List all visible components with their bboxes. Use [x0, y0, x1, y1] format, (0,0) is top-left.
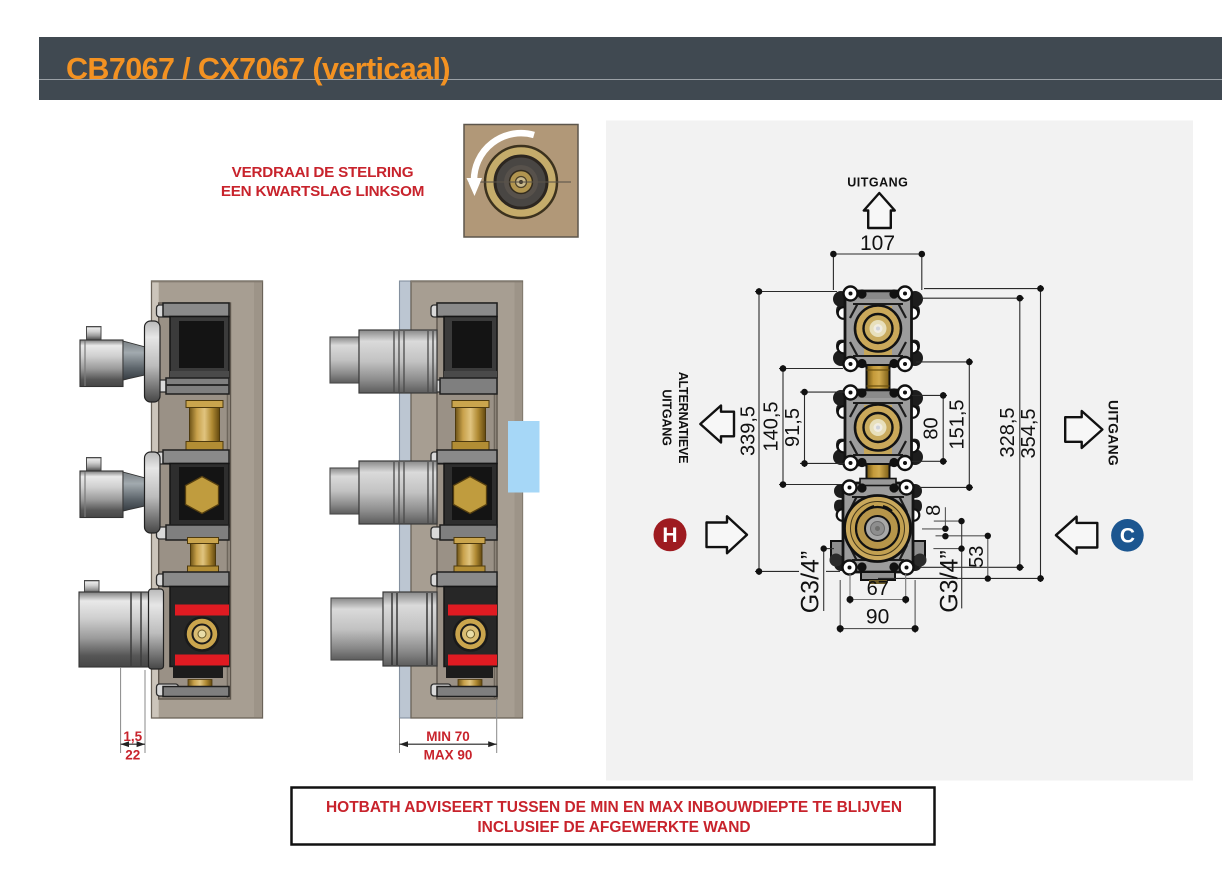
- svg-text:22: 22: [125, 748, 140, 763]
- svg-text:H: H: [662, 524, 677, 547]
- svg-text:MIN 70: MIN 70: [426, 729, 470, 744]
- svg-text:C: C: [1120, 524, 1135, 547]
- svg-text:VERDRAAI DE STELRING: VERDRAAI DE STELRING: [232, 164, 414, 181]
- svg-text:UITGANG: UITGANG: [1106, 400, 1122, 466]
- svg-text:INCLUSIEF DE AFGEWERKTE WAND: INCLUSIEF DE AFGEWERKTE WAND: [477, 819, 750, 836]
- svg-text:MAX 90: MAX 90: [424, 748, 473, 763]
- svg-text:80: 80: [921, 417, 943, 439]
- svg-text:328,5: 328,5: [997, 407, 1019, 457]
- svg-text:354,5: 354,5: [1018, 408, 1040, 458]
- svg-text:HOTBATH ADVISEERT TUSSEN DE MI: HOTBATH ADVISEERT TUSSEN DE MIN EN MAX I…: [326, 799, 902, 816]
- svg-text:CB7067 / CX7067 (verticaal): CB7067 / CX7067 (verticaal): [66, 52, 450, 86]
- svg-text:339,5: 339,5: [738, 406, 760, 456]
- svg-text:1,5: 1,5: [123, 729, 142, 744]
- svg-text:UITGANG: UITGANG: [660, 389, 674, 445]
- svg-text:90: 90: [866, 606, 889, 629]
- svg-text:91,5: 91,5: [782, 408, 804, 447]
- svg-text:G3/4”: G3/4”: [797, 551, 825, 614]
- svg-text:140,5: 140,5: [761, 401, 783, 451]
- svg-text:G3/4”: G3/4”: [936, 550, 964, 613]
- svg-text:ALTERNATIEVE: ALTERNATIEVE: [676, 372, 690, 464]
- svg-text:EEN KWARTSLAG LINKSOM: EEN KWARTSLAG LINKSOM: [221, 183, 424, 200]
- svg-text:53: 53: [966, 546, 988, 568]
- svg-text:67: 67: [867, 578, 889, 600]
- svg-text:107: 107: [860, 232, 895, 255]
- svg-text:8: 8: [923, 505, 945, 516]
- svg-text:151,5: 151,5: [947, 399, 969, 449]
- svg-text:UITGANG: UITGANG: [847, 176, 908, 190]
